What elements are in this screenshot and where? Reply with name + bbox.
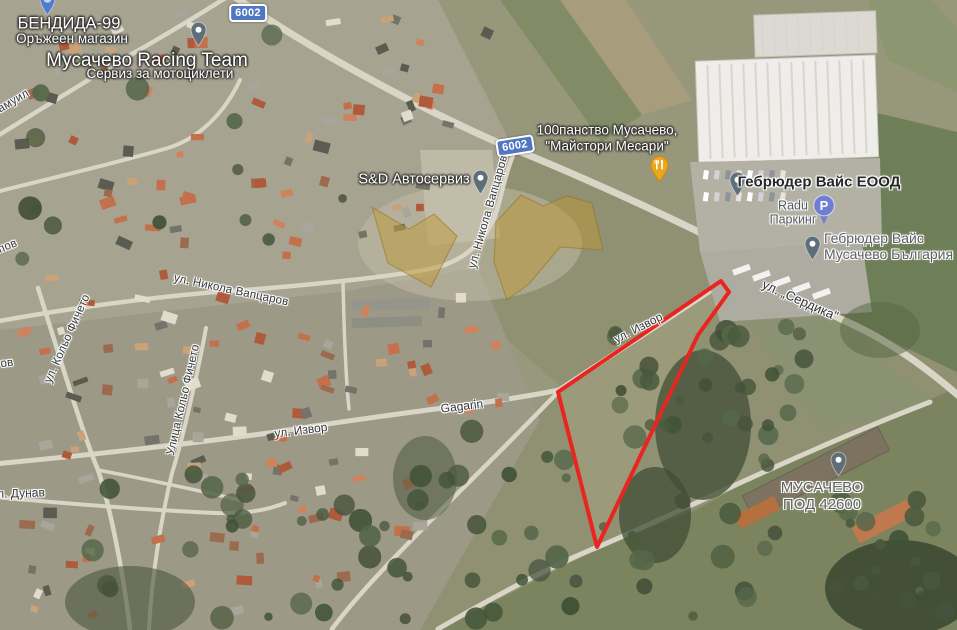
street-kolyo-ficheto-east: Улица Кольо Фичето bbox=[165, 343, 203, 456]
map-canvas[interactable]: 60026002 P БЕНДИДА-99Оръжеен магазинМуса… bbox=[0, 0, 957, 630]
street-dunav-fragment: л. Дунав bbox=[0, 486, 45, 501]
bendida-sublabel[interactable]: Оръжеен магазин bbox=[16, 31, 128, 47]
musachevo-pod-label[interactable]: МУСАЧЕВО ПОД 42600 bbox=[781, 479, 864, 514]
racing-team-pin[interactable] bbox=[189, 20, 208, 47]
gebruder-weiss-eood-label[interactable]: Гебрюдер Вайс ЕООД bbox=[738, 173, 901, 190]
street-kolyo-ficheto-west: ул. Кольо Фичето bbox=[43, 293, 94, 386]
street-serdika: ул. „Сердика" bbox=[760, 278, 841, 325]
restaurant-marker[interactable] bbox=[649, 155, 670, 182]
street-gagarin: Gagarin bbox=[440, 398, 484, 417]
street-vaptsarov-diagonal: ул. Никола Вапцаров bbox=[172, 272, 289, 309]
musachevo-pod-pin[interactable] bbox=[829, 450, 848, 477]
sd-autoservice-label[interactable]: S&D Автосервиз bbox=[358, 172, 469, 189]
street-ov-fragment: ов bbox=[0, 357, 14, 372]
farm-label[interactable]: 100панство Мусачево, "Майстори Месари" bbox=[537, 122, 678, 153]
street-samuil-fragment: Самуил bbox=[0, 87, 32, 120]
road-badge-6002-top: 6002 bbox=[229, 4, 267, 22]
radu-parking-label[interactable]: Radu Паркинг bbox=[770, 199, 817, 228]
gebruder-weiss-musachevo-label[interactable]: Гебрюдер Вайс Мусачево България bbox=[824, 230, 953, 262]
sd-autoservice-pin[interactable] bbox=[471, 168, 490, 195]
street-pov-fragment: пов bbox=[0, 237, 19, 257]
racing-team-sublabel[interactable]: Сервиз за мотоциклети bbox=[87, 66, 234, 82]
gebruder-weiss-musachevo-pin[interactable] bbox=[803, 234, 822, 261]
labels-layer: 60026002 P БЕНДИДА-99Оръжеен магазинМуса… bbox=[0, 0, 957, 630]
street-izvor-parcel: ул. Извор bbox=[613, 311, 666, 347]
svg-text:P: P bbox=[820, 198, 829, 213]
street-izvor-west: ул. Извор bbox=[274, 421, 328, 441]
